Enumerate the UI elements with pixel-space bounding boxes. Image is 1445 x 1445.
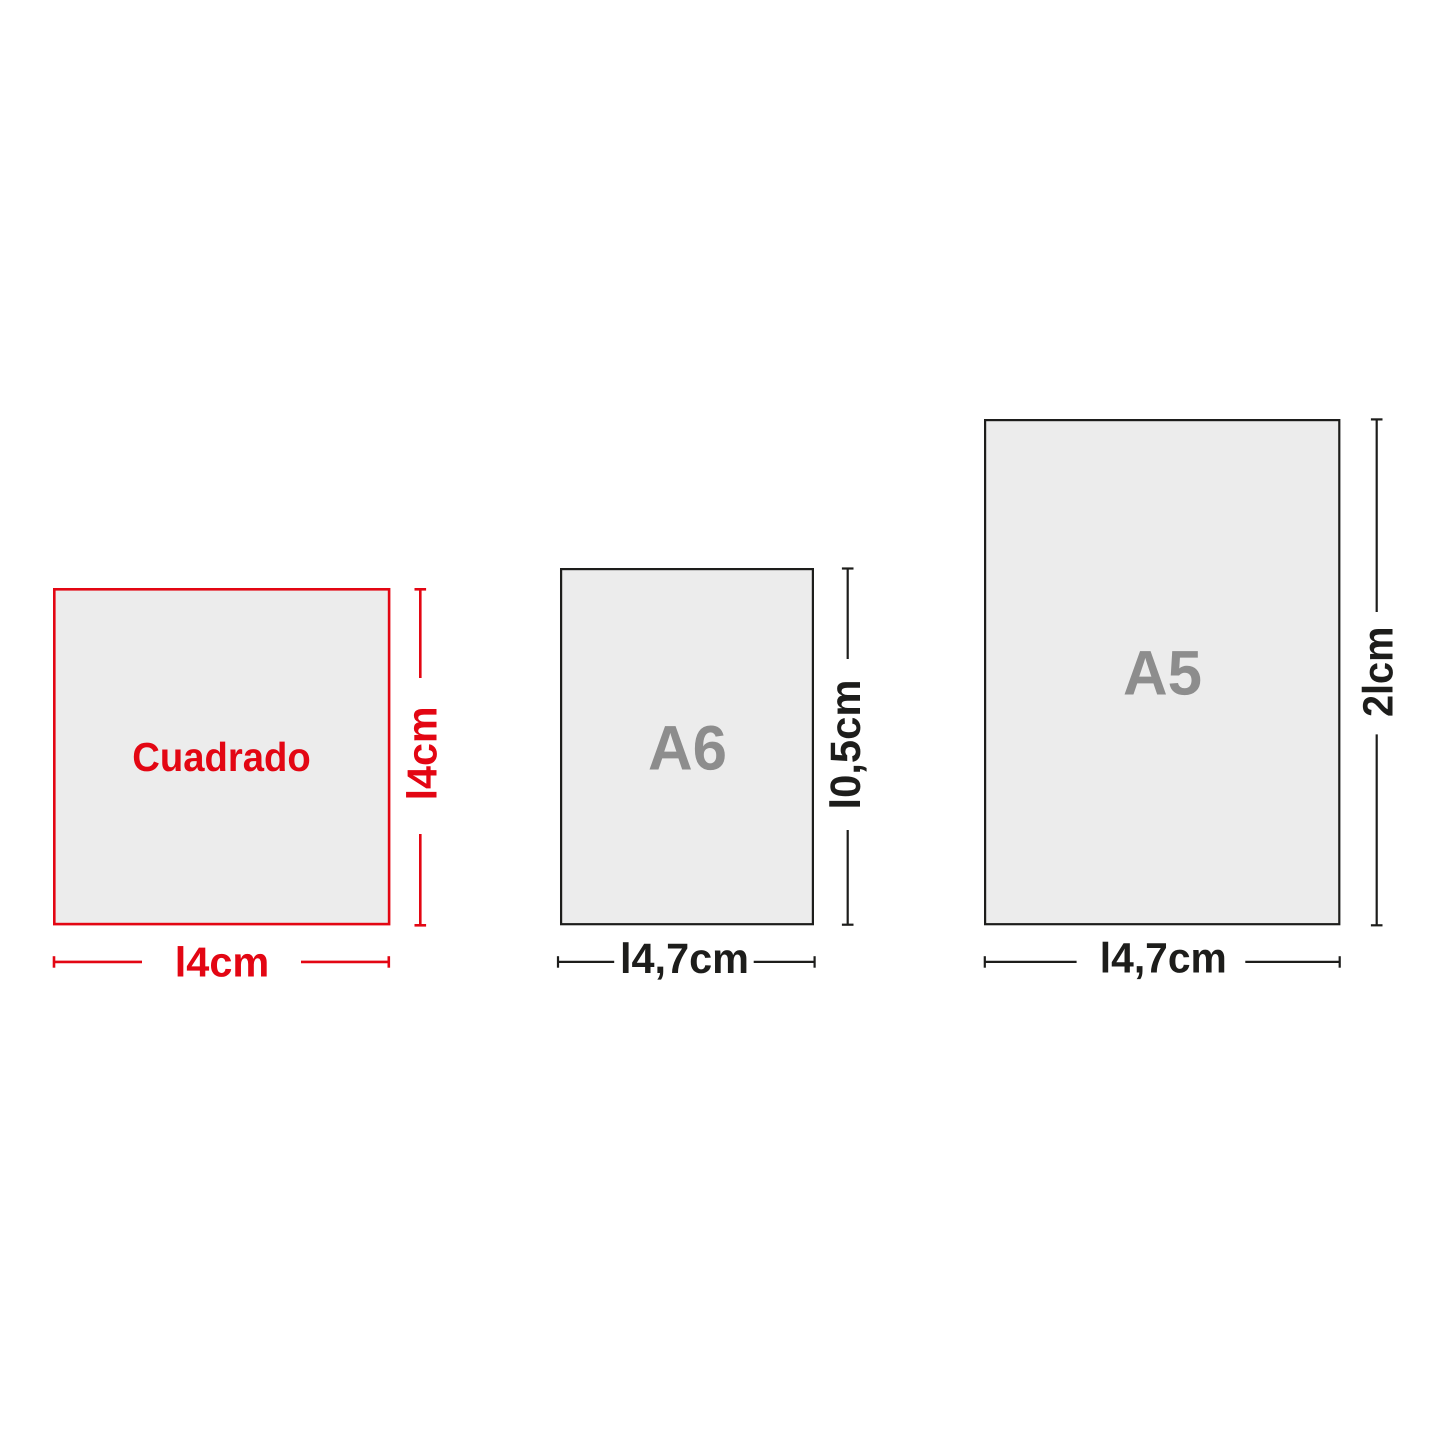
svg-text:A5: A5 <box>1123 639 1202 709</box>
svg-text:l4,7cm: l4,7cm <box>1100 936 1227 983</box>
svg-text:l4,7cm: l4,7cm <box>620 936 749 983</box>
svg-text:Cuadrado: Cuadrado <box>132 734 311 780</box>
svg-text:l0,5cm: l0,5cm <box>823 680 870 810</box>
svg-text:2lcm: 2lcm <box>1356 627 1403 718</box>
svg-text:l4cm: l4cm <box>175 939 270 986</box>
svg-text:A6: A6 <box>648 713 727 783</box>
svg-text:l4cm: l4cm <box>398 706 445 800</box>
